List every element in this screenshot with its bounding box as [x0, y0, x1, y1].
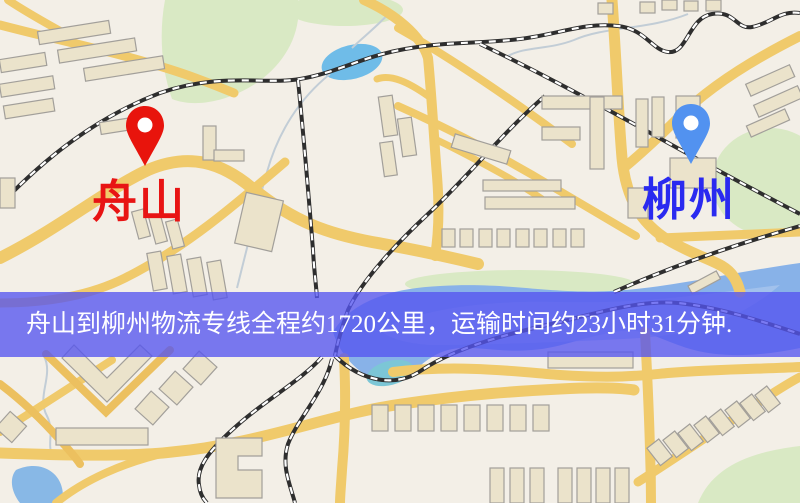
origin-label: 舟山 [92, 180, 186, 225]
destination-pin [669, 102, 713, 166]
destination-label: 柳州 [642, 178, 736, 223]
route-info-text: 舟山到柳州物流专线全程约1720公里，运输时间约23小时31分钟. [0, 292, 800, 357]
origin-pin [123, 104, 167, 168]
route-info-banner: 舟山到柳州物流专线全程约1720公里，运输时间约23小时31分钟. [0, 292, 800, 357]
map-canvas [0, 0, 800, 503]
blue-location-pin-icon [669, 102, 713, 166]
map-screenshot: 舟山 柳州 舟山到柳州物流专线全程约1720公里，运输时间约23小时31分钟. [0, 0, 800, 503]
red-location-pin-icon [123, 104, 167, 168]
